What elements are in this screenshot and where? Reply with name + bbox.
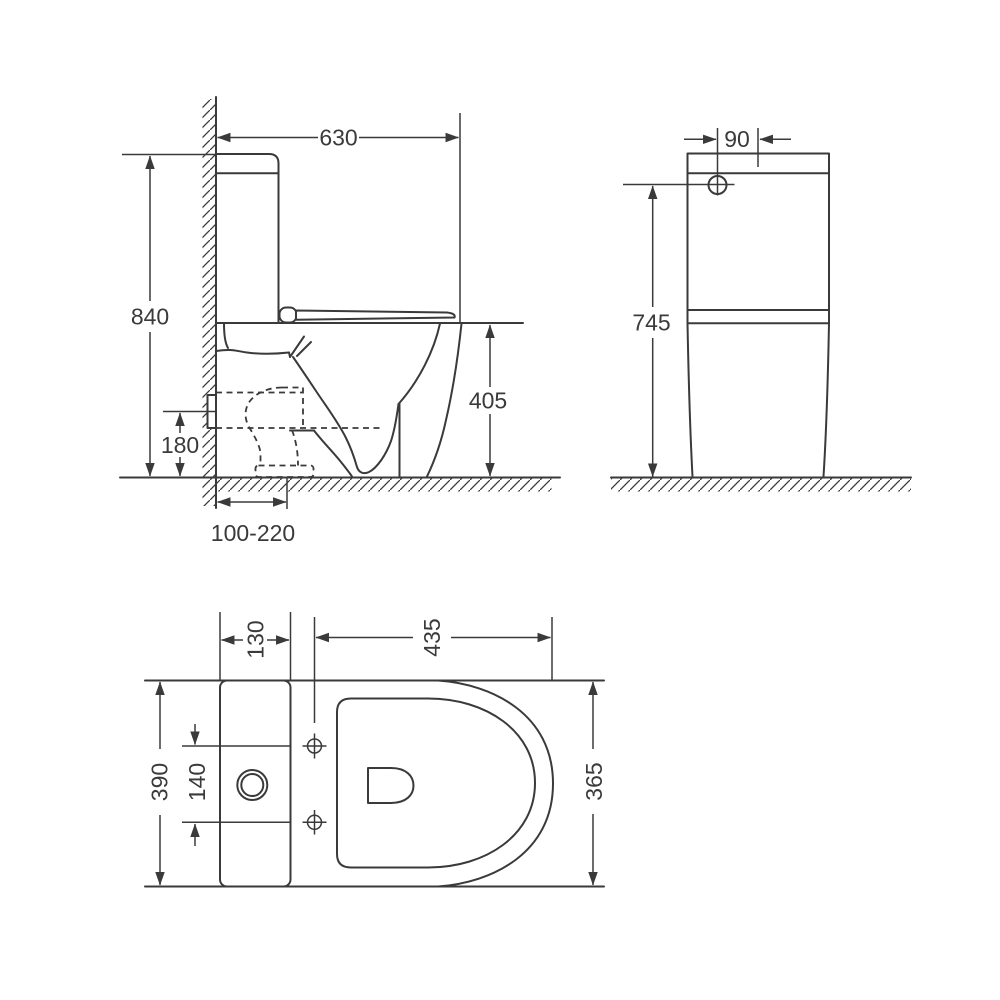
dim-365: 365 — [581, 682, 607, 885]
top-view: 130 435 390 140 365 — [145, 612, 607, 887]
bowl-interior-curve — [293, 357, 399, 473]
fixing-hole-bottom — [303, 810, 327, 835]
trap-left-hidden — [246, 388, 282, 466]
technical-drawing-page: 630 840 405 180 100-220 — [0, 0, 1000, 1000]
dim-label-390: 390 — [147, 763, 173, 801]
dim-630: 630 — [218, 113, 461, 323]
wall-hatching — [203, 99, 217, 506]
dim-label-90: 90 — [724, 126, 750, 152]
bowl-shelf — [216, 350, 289, 354]
dim-label-405: 405 — [469, 388, 507, 414]
dim-390: 390 — [147, 682, 173, 885]
dim-label-130: 130 — [243, 620, 269, 658]
inlet-hole-inner — [241, 774, 263, 796]
rim-section-notch — [289, 337, 311, 358]
dim-label-435: 435 — [419, 618, 445, 656]
dim-745: 745 — [632, 186, 670, 477]
cistern-footprint — [220, 681, 291, 887]
floor-hatching — [611, 479, 911, 492]
dim-label-140: 140 — [184, 763, 210, 801]
dim-label-100-220: 100-220 — [211, 520, 295, 546]
dim-405: 405 — [469, 325, 507, 476]
dim-840: 840 — [122, 155, 216, 477]
rear-view: 90 745 — [611, 126, 911, 492]
flush-outlet-outline — [368, 768, 414, 803]
floor-hatching — [217, 479, 552, 492]
dim-435: 435 — [316, 618, 551, 656]
dim-130: 130 — [222, 620, 290, 658]
trap-foot-hidden — [256, 466, 314, 478]
dim-140: 140 — [184, 724, 210, 846]
pedestal-left — [688, 323, 693, 476]
seat-hinge — [280, 308, 297, 323]
dim-90: 90 — [684, 126, 791, 152]
bowl-rim-band — [688, 310, 830, 323]
fixing-hole-top — [303, 734, 327, 759]
cistern-outline — [688, 154, 830, 311]
side-view: 630 840 405 180 100-220 — [120, 97, 560, 546]
cistern-outline — [216, 154, 279, 323]
dim-label-365: 365 — [581, 762, 607, 800]
pedestal-right — [824, 323, 830, 476]
bowl-back-inner — [224, 324, 228, 349]
dim-label-745: 745 — [632, 310, 670, 336]
dim-label-630: 630 — [319, 125, 357, 151]
toilet-dimension-drawing: 630 840 405 180 100-220 — [0, 0, 1000, 1000]
dim-label-840: 840 — [131, 304, 169, 330]
trap-downpipe-hidden — [292, 430, 298, 466]
dim-label-180: 180 — [161, 432, 199, 458]
bowl-opening-outline — [337, 699, 535, 868]
seat-lid — [296, 311, 455, 320]
bowl-inner-shell — [399, 324, 441, 477]
